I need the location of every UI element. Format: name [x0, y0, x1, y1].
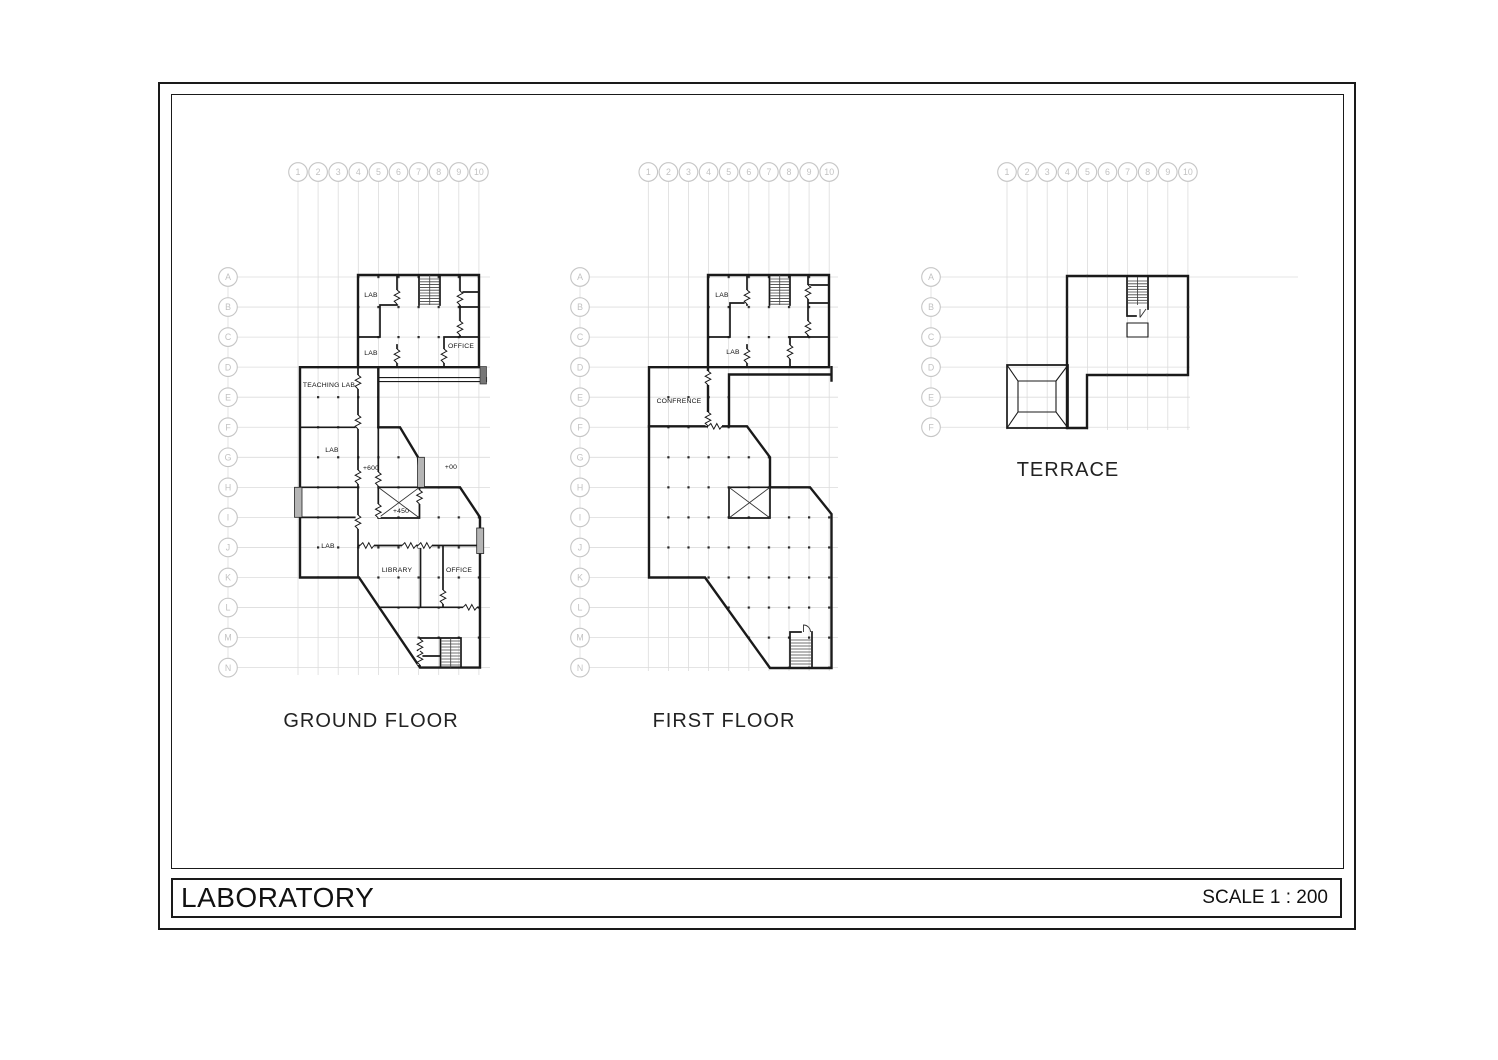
svg-text:D: D [577, 362, 583, 372]
column-dots-first [649, 275, 832, 668]
svg-text:G: G [225, 452, 232, 462]
svg-text:9: 9 [1165, 167, 1170, 177]
svg-text:8: 8 [787, 167, 792, 177]
canopy-pier [480, 367, 487, 385]
level-label-plus600: +600 [363, 465, 379, 472]
svg-text:2: 2 [1025, 167, 1030, 177]
plan-title-terrace: TERRACE [1017, 459, 1120, 481]
column-dots-ground [300, 275, 480, 668]
svg-text:A: A [577, 272, 583, 282]
svg-text:C: C [928, 332, 935, 342]
svg-text:5: 5 [726, 167, 731, 177]
svg-text:B: B [225, 302, 231, 312]
room-label-lab-mid: LAB [726, 349, 740, 356]
svg-text:D: D [225, 362, 231, 372]
svg-text:L: L [578, 603, 583, 613]
svg-text:2: 2 [316, 167, 321, 177]
svg-text:6: 6 [1105, 167, 1110, 177]
svg-text:7: 7 [416, 167, 421, 177]
svg-text:F: F [577, 422, 583, 432]
svg-text:C: C [225, 332, 232, 342]
svg-text:J: J [578, 543, 582, 553]
room-label-lab-west: LAB [325, 447, 339, 454]
svg-text:L: L [226, 603, 231, 613]
terrace-plan: 12345678910ABCDEF [922, 163, 1298, 481]
room-label-conference: CONFRENCE [657, 398, 702, 405]
svg-text:5: 5 [1085, 167, 1090, 177]
grid-terrace: 12345678910ABCDEF [922, 163, 1298, 437]
svg-text:3: 3 [336, 167, 341, 177]
svg-text:C: C [577, 332, 584, 342]
svg-text:1: 1 [646, 167, 651, 177]
svg-text:E: E [225, 392, 231, 402]
svg-text:1: 1 [1005, 167, 1010, 177]
west-entrance-glazing [295, 487, 303, 517]
svg-text:9: 9 [456, 167, 461, 177]
svg-text:A: A [225, 272, 231, 282]
room-label-library: LIBRARY [382, 567, 413, 574]
svg-text:E: E [577, 392, 583, 402]
svg-text:M: M [576, 633, 583, 643]
svg-text:8: 8 [1145, 167, 1150, 177]
room-label-lab-upper: LAB [364, 292, 378, 299]
svg-text:F: F [225, 422, 231, 432]
svg-text:H: H [577, 482, 583, 492]
room-label-office-upper: OFFICE [448, 343, 474, 350]
svg-text:8: 8 [436, 167, 441, 177]
svg-text:B: B [577, 302, 583, 312]
svg-text:3: 3 [1045, 167, 1050, 177]
svg-text:9: 9 [807, 167, 812, 177]
svg-text:I: I [227, 513, 229, 523]
entrance-canopy [379, 378, 487, 382]
svg-text:E: E [928, 392, 934, 402]
plan-title-ground-floor: GROUND FLOOR [283, 710, 458, 732]
ground-floor-plan: 12345678910ABCDEFGHIJKLMN [219, 163, 490, 732]
svg-text:K: K [225, 573, 231, 583]
plan-title-first-floor: FIRST FLOOR [653, 710, 796, 732]
svg-text:3: 3 [686, 167, 691, 177]
drawing-sheet: LABORATORY SCALE 1 : 200 12345678910ABCD… [0, 0, 1498, 1060]
room-label-lab-mid: LAB [364, 350, 378, 357]
room-label-office-lower: OFFICE [446, 567, 472, 574]
svg-text:K: K [577, 573, 583, 583]
svg-text:D: D [928, 362, 934, 372]
svg-text:F: F [928, 422, 934, 432]
svg-text:4: 4 [706, 167, 711, 177]
svg-text:I: I [579, 513, 581, 523]
floor-plan-drawing: 12345678910ABCDEFGHIJKLMN [0, 0, 1498, 1060]
svg-text:N: N [577, 663, 583, 673]
lobby-glazing [418, 457, 425, 487]
svg-text:10: 10 [824, 167, 834, 177]
svg-text:N: N [225, 663, 231, 673]
svg-text:10: 10 [474, 167, 484, 177]
skylight-pyramid-outer [1007, 365, 1068, 428]
svg-text:4: 4 [1065, 167, 1070, 177]
stair-door-leaf [1140, 309, 1146, 318]
svg-text:J: J [226, 543, 230, 553]
svg-text:G: G [577, 452, 584, 462]
skylight-pyramid-hips [1007, 365, 1068, 428]
room-label-teaching-lab: TEACHING LAB [303, 382, 356, 389]
room-label-lab-upper: LAB [715, 292, 729, 299]
svg-text:M: M [224, 633, 231, 643]
svg-text:2: 2 [666, 167, 671, 177]
svg-text:6: 6 [746, 167, 751, 177]
level-label-plus450: +450 [393, 508, 409, 515]
svg-text:6: 6 [396, 167, 401, 177]
svg-text:A: A [928, 272, 934, 282]
svg-text:7: 7 [766, 167, 771, 177]
level-label-plus00: +00 [445, 464, 457, 471]
roof-hatch [1127, 323, 1148, 337]
svg-text:10: 10 [1183, 167, 1193, 177]
svg-text:5: 5 [376, 167, 381, 177]
svg-text:H: H [225, 482, 231, 492]
svg-text:4: 4 [356, 167, 361, 177]
svg-text:7: 7 [1125, 167, 1130, 177]
room-label-lab-southwest: LAB [321, 543, 335, 550]
stair-hatch-terrace [1128, 277, 1147, 305]
walls-terrace [1007, 276, 1188, 428]
first-floor-plan: 12345678910ABCDEFGHIJKLMN [571, 163, 839, 732]
svg-text:1: 1 [296, 167, 301, 177]
east-entrance-glazing [477, 528, 484, 554]
svg-text:B: B [928, 302, 934, 312]
